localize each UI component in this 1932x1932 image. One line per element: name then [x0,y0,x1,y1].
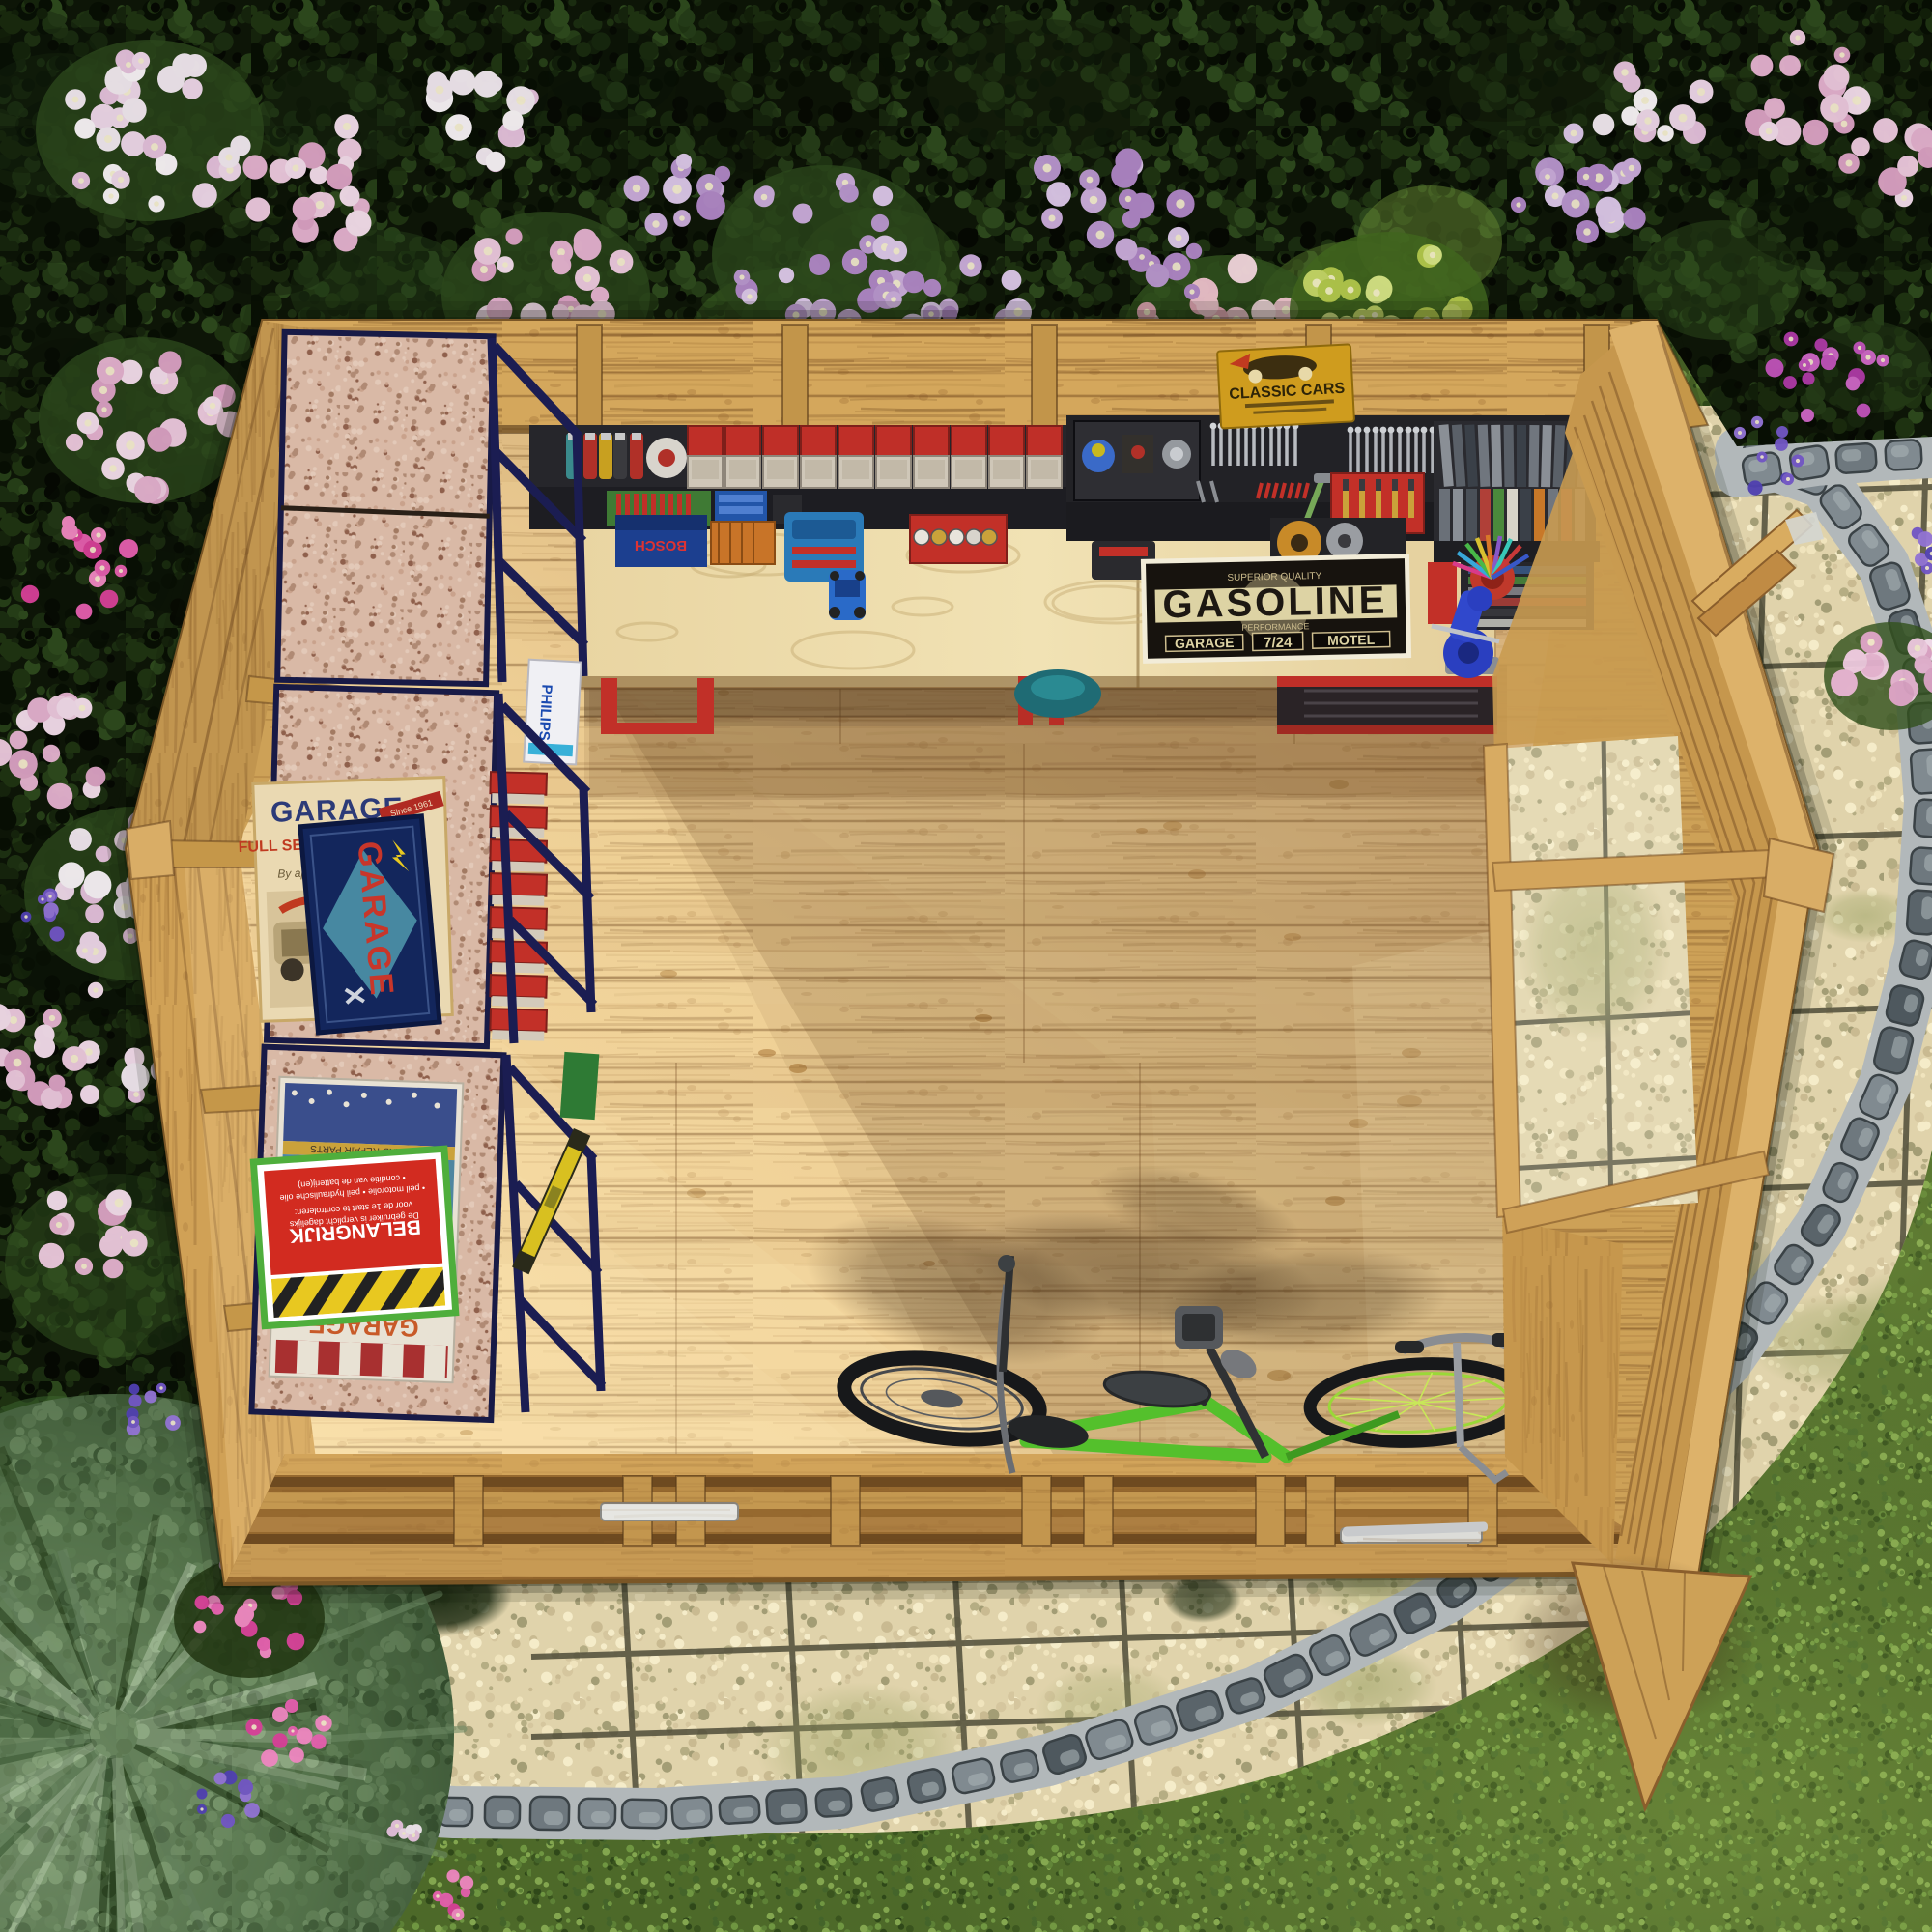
svg-text:BOSCH: BOSCH [635,537,687,554]
svg-text:SUPERIOR QUALITY: SUPERIOR QUALITY [1227,571,1321,583]
svg-text:GARAGE: GARAGE [1175,635,1235,651]
svg-text:PHILIPS: PHILIPS [535,684,554,741]
svg-text:PERFORMANCE: PERFORMANCE [1241,621,1309,632]
svg-text:GASOLINE: GASOLINE [1162,580,1388,627]
svg-text:MOTEL: MOTEL [1327,632,1376,648]
svg-text:7/24: 7/24 [1264,635,1293,652]
